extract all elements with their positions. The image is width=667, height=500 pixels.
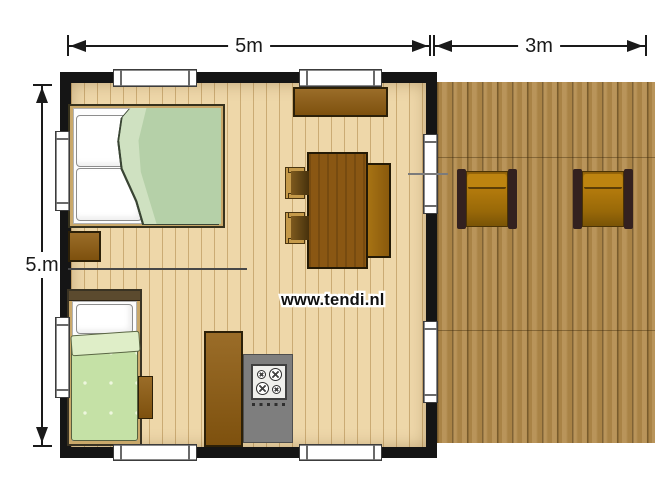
arrow-right-icon: [412, 40, 428, 52]
dimension-end-bar: [33, 445, 52, 447]
window-top-left: [113, 69, 197, 87]
burner-icon: [269, 368, 282, 381]
burner-icon: [256, 382, 269, 395]
window-bottom-right: [299, 444, 382, 461]
arrow-right-icon: [627, 40, 643, 52]
single-bed: [67, 289, 142, 446]
dimension-label-deck-width: 3m: [518, 36, 560, 56]
sideboard-cabinet: [293, 87, 388, 117]
stove-knobs: [252, 403, 286, 406]
door-right-lower: [423, 321, 438, 403]
terrace-deck: [437, 82, 655, 443]
arrow-left-icon: [70, 40, 86, 52]
kitchen-tall-cabinet: [204, 331, 243, 447]
arrow-left-icon: [436, 40, 452, 52]
arrow-up-icon: [36, 87, 48, 103]
burner-icon: [257, 370, 266, 379]
blanket: [106, 106, 223, 226]
chair-back-cushion: [468, 174, 506, 189]
burner-icon: [272, 385, 281, 394]
dining-table: [307, 152, 368, 269]
deck-plank-seam: [437, 157, 655, 158]
chair-seat: [291, 216, 309, 240]
window-left-lower: [55, 317, 70, 398]
dimension-deck-width: 3m: [433, 34, 648, 60]
arrow-down-icon: [36, 427, 48, 443]
deck-plank-seam: [437, 330, 655, 331]
dimension-house-depth: 5.m: [30, 84, 56, 448]
window-top-right: [299, 69, 382, 87]
dimension-end-bar: [429, 35, 431, 56]
headboard: [69, 291, 140, 301]
kitchen-counter: [243, 354, 293, 443]
deck-chair-right: [573, 169, 633, 229]
dimension-house-width: 5m: [60, 34, 436, 60]
chair-back-cushion: [584, 174, 622, 189]
window-left-upper: [55, 131, 70, 211]
dining-chair-top: [285, 167, 309, 199]
chair-armrest: [624, 169, 633, 229]
side-cabinet: [138, 376, 153, 419]
dining-chair-bottom: [285, 212, 309, 244]
floor-plan: 5m 3m 5.m: [0, 0, 667, 500]
door-swing-line: [408, 173, 448, 175]
dimension-label-house-width: 5m: [228, 36, 270, 56]
chair-armrest: [508, 169, 517, 229]
chair-armrest: [457, 169, 466, 229]
chair-armrest: [573, 169, 582, 229]
chair-seat: [291, 171, 309, 195]
dimension-label-house-depth: 5.m: [24, 252, 59, 278]
partition-wall-line: [68, 268, 247, 270]
double-bed: [68, 104, 225, 228]
pillow: [76, 304, 133, 334]
bedside-cabinet: [68, 231, 101, 262]
window-bottom-left: [113, 444, 197, 461]
dimension-end-bar: [645, 35, 647, 56]
watermark-url: www.tendi.nl: [281, 291, 385, 310]
deck-chair-left: [457, 169, 517, 229]
dining-bench: [365, 163, 391, 258]
stove-icon: [251, 364, 287, 400]
